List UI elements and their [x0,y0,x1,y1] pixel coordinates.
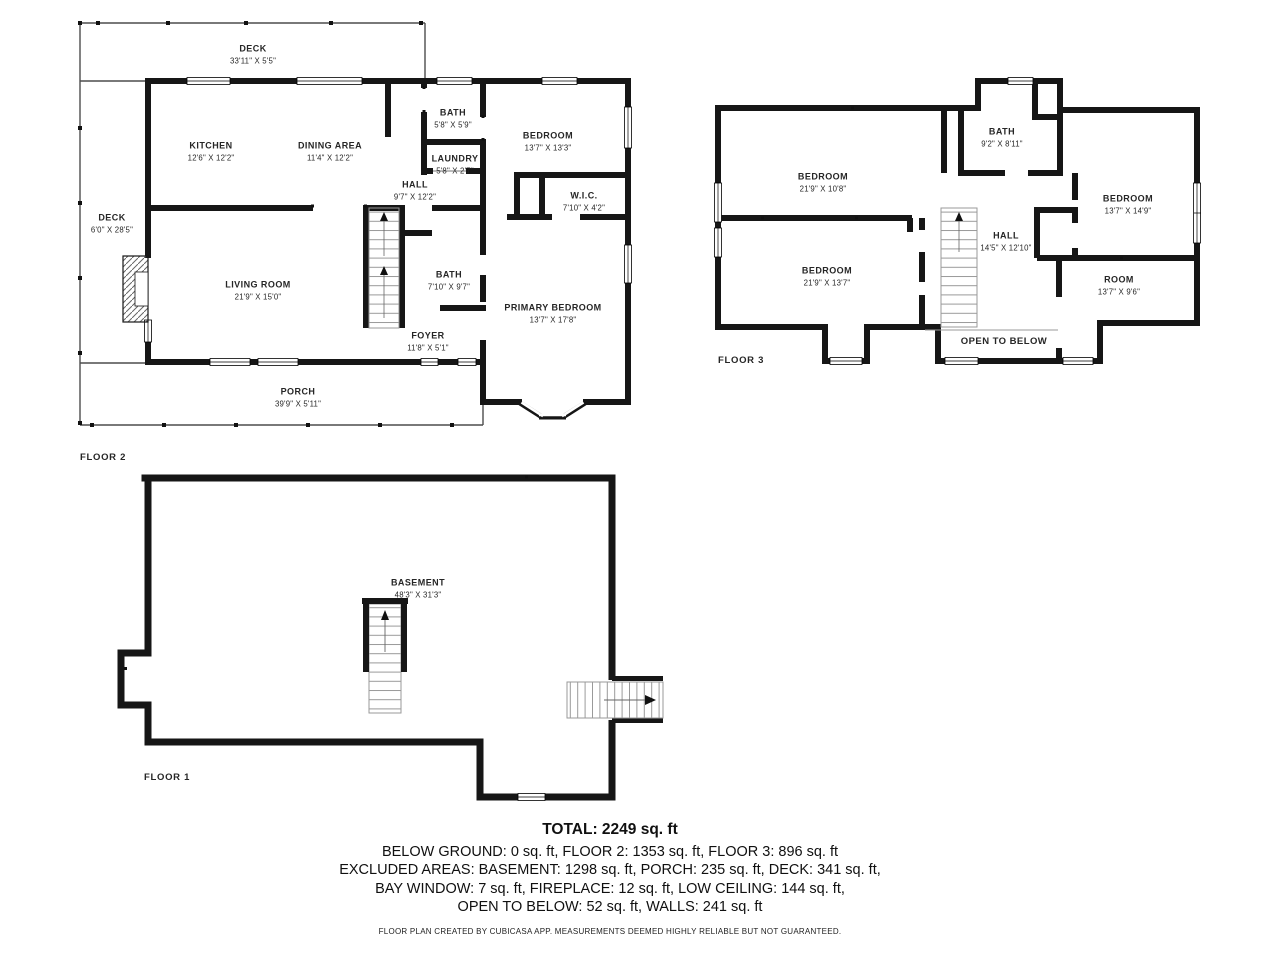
area-summary: TOTAL: 2249 sq. ft BELOW GROUND: 0 sq. f… [250,821,970,936]
floorplan-page: DECK 33'11" X 5'5" KITCHEN 12'6" X 12'2"… [0,0,1280,960]
room-label-basement: BASEMENT 48'3" X 31'3" [391,578,445,601]
floor1-plan [118,475,664,801]
room-label-bath-upper: BATH 5'8" X 5'9" [434,108,472,131]
room-label-bedroom-floor2: BEDROOM 13'7" X 13'3" [523,131,573,154]
floor1-window [518,794,545,801]
room-label-room-floor3: ROOM 13'7" X 9'6" [1098,275,1140,298]
room-label-dining-area: DINING AREA 11'4" X 12'2" [298,141,362,164]
floor3-plan [715,78,1202,365]
room-label-bath-mid: BATH 7'10" X 9'7" [428,270,470,293]
floor2-plan [78,21,632,427]
floor3-label: FLOOR 3 [718,355,764,366]
floor2-label: FLOOR 2 [80,452,126,463]
room-label-hall-floor3: HALL 14'5" X 12'10" [980,231,1031,254]
room-label-deck-left: DECK 6'0" X 28'5" [91,213,133,236]
summary-line-excluded-2: BAY WINDOW: 7 sq. ft, FIREPLACE: 12 sq. … [250,880,970,898]
summary-line-excluded-1: EXCLUDED AREAS: BASEMENT: 1298 sq. ft, P… [250,861,970,879]
room-label-bedroom2-floor3: BEDROOM 13'7" X 14'9" [1103,194,1153,217]
room-label-living-room: LIVING ROOM 21'9" X 15'0" [225,280,290,303]
bay-window [520,402,585,417]
disclaimer-text: FLOOR PLAN CREATED BY CUBICASA APP. MEAS… [250,927,970,936]
room-label-deck-top: DECK 33'11" X 5'5" [230,44,276,67]
room-label-laundry: LAUNDRY 5'8" X 2'7" [432,154,479,177]
floor3-stairs [941,208,977,327]
room-label-hall-floor2: HALL 9'7" X 12'2" [394,180,436,203]
floor1-basement-stairs [362,598,408,713]
room-label-porch: PORCH 39'9" X 5'11" [275,387,321,410]
room-label-bath-floor3: BATH 9'2" X 8'11" [981,127,1023,150]
room-label-bedroom3-floor3: BEDROOM 21'9" X 13'7" [802,266,852,289]
floor1-wall-ticks [124,476,528,671]
room-label-open-to-below: OPEN TO BELOW [961,336,1047,348]
room-label-primary-bedroom: PRIMARY BEDROOM 13'7" X 17'8" [504,303,601,326]
summary-line-floors: BELOW GROUND: 0 sq. ft, FLOOR 2: 1353 sq… [250,843,970,861]
room-label-bedroom1-floor3: BEDROOM 21'9" X 10'8" [798,172,848,195]
total-area-text: TOTAL: 2249 sq. ft [250,821,970,839]
fireplace-icon [123,256,148,322]
room-label-kitchen: KITCHEN 12'6" X 12'2" [188,141,235,164]
room-label-wic: W.I.C. 7'10" X 4'2" [563,191,605,214]
floor1-exterior-stairs [567,682,663,718]
summary-line-excluded-3: OPEN TO BELOW: 52 sq. ft, WALLS: 241 sq.… [250,898,970,916]
room-label-foyer: FOYER 11'8" X 5'1" [407,331,449,354]
floor2-stairs [369,208,399,328]
floor1-label: FLOOR 1 [144,772,190,783]
